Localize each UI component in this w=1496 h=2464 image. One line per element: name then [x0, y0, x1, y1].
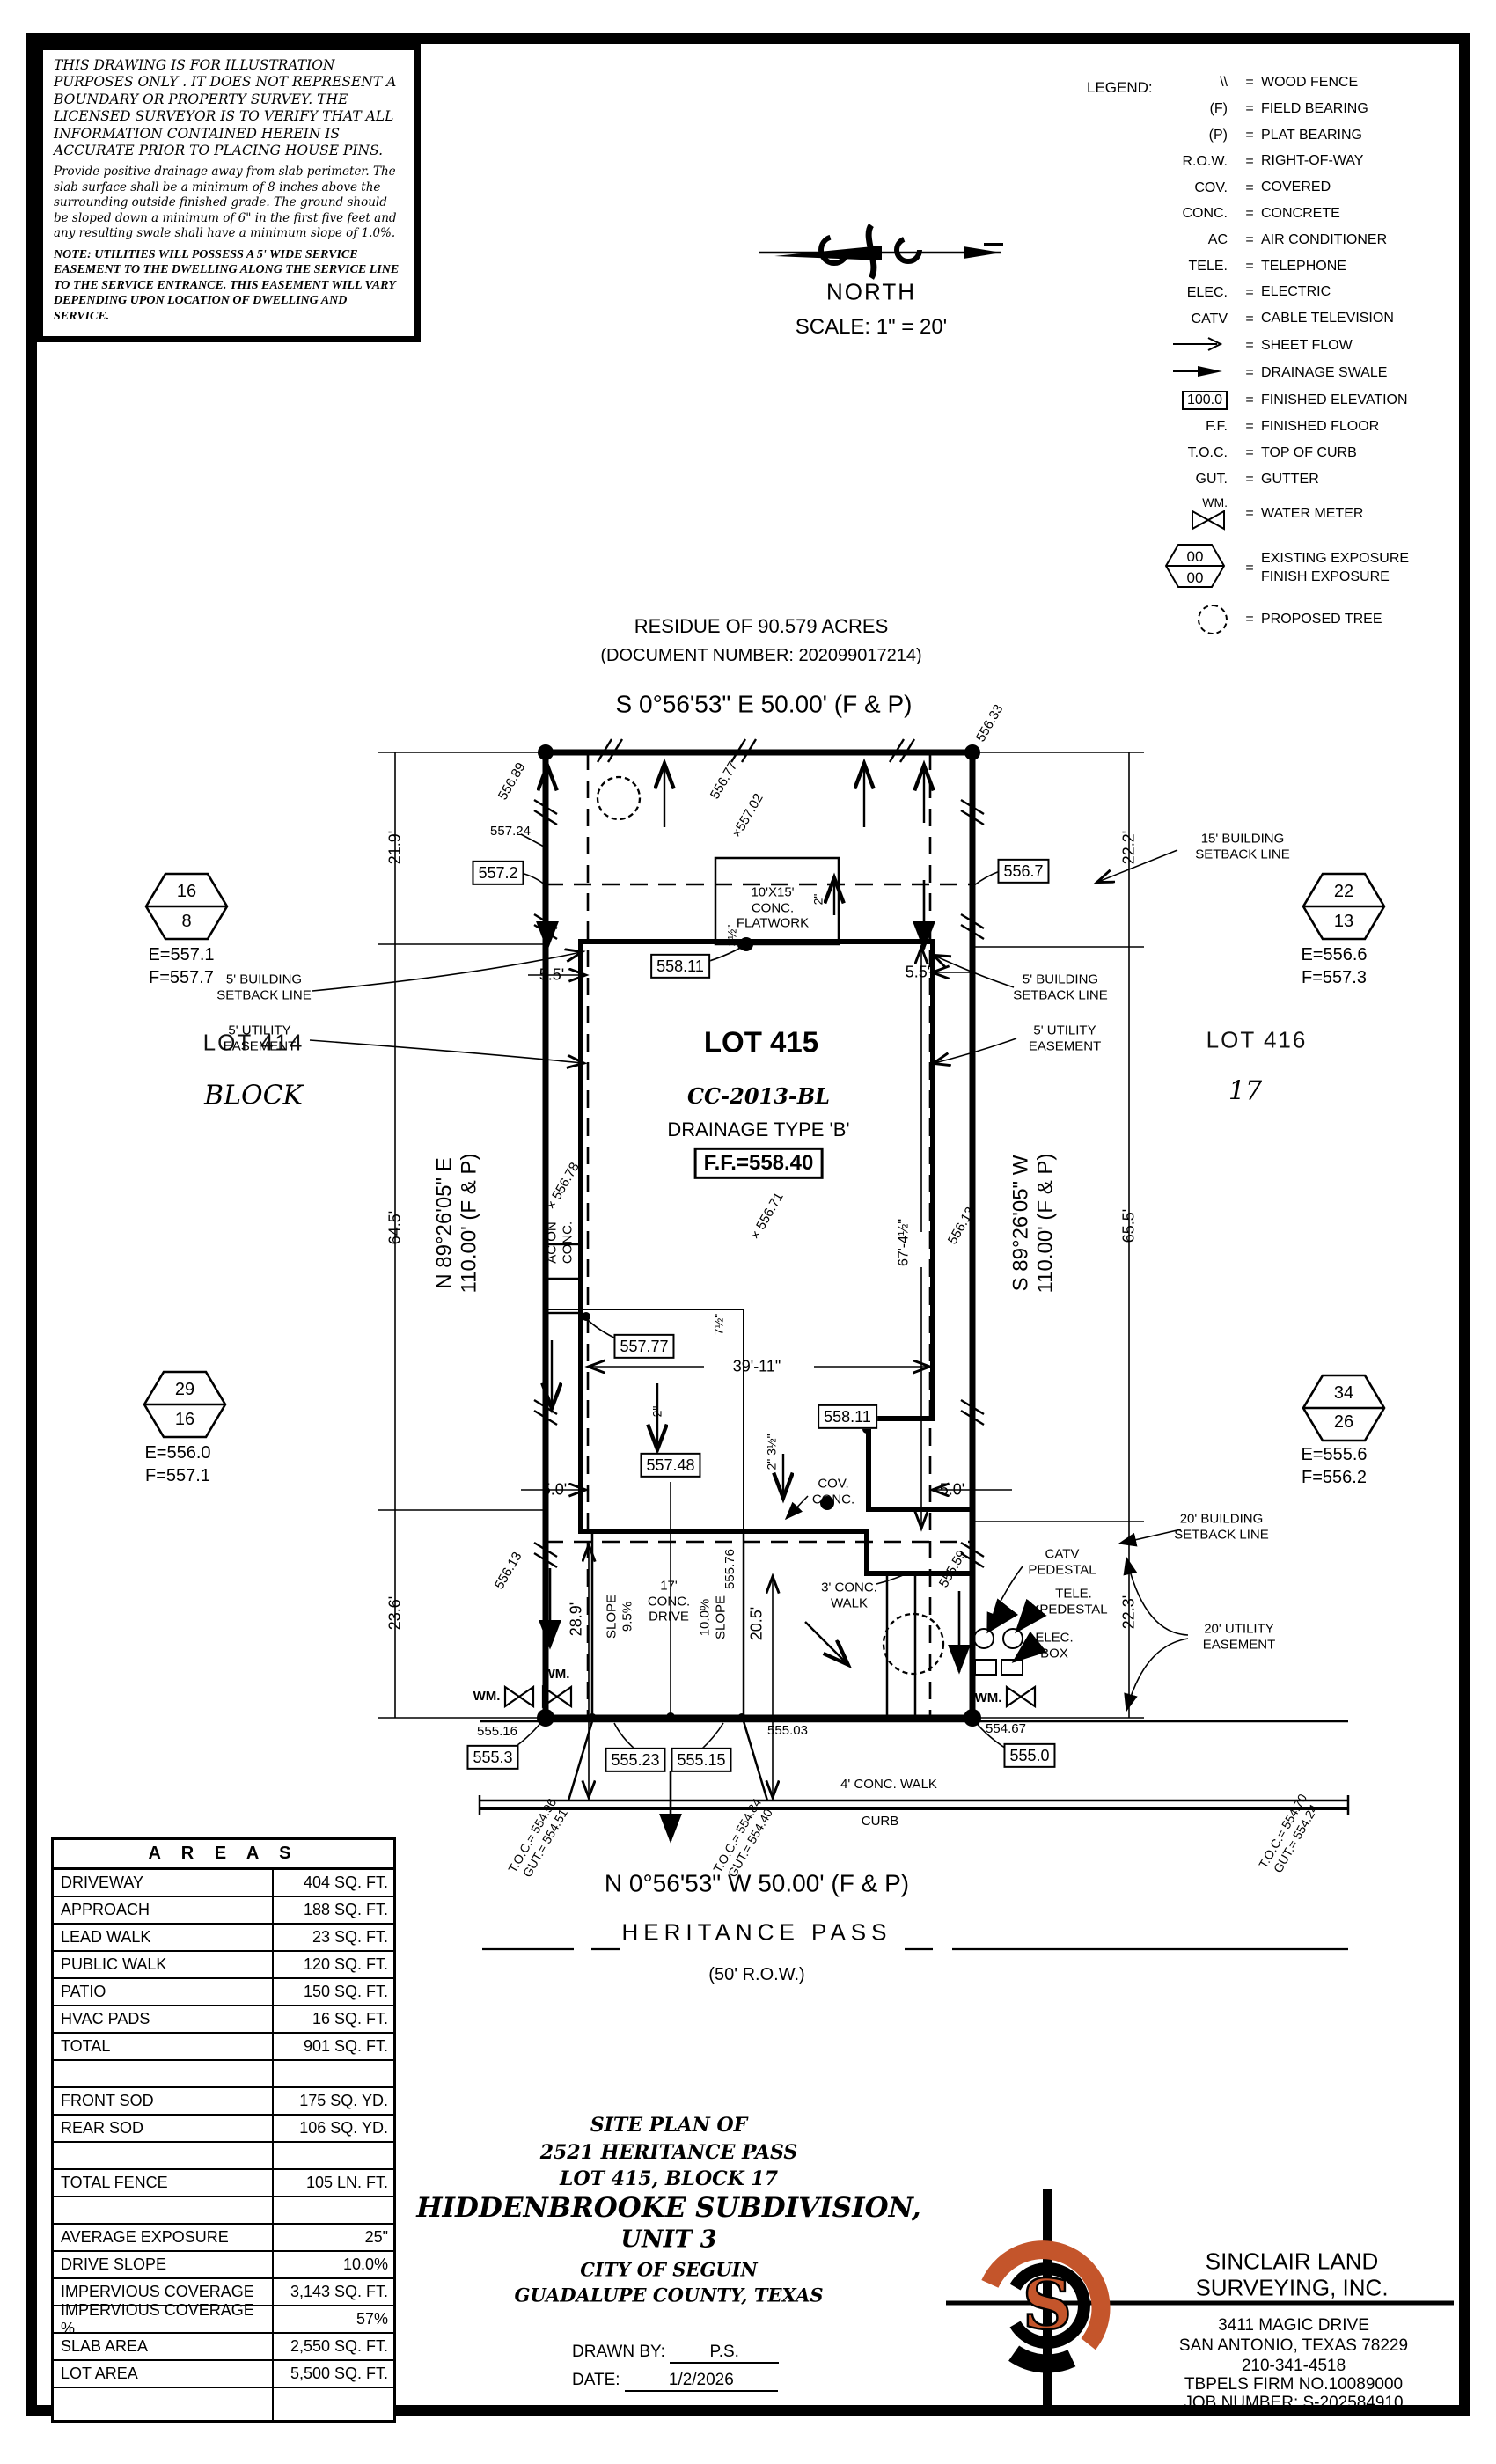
- hex-se-finish: F=556.2: [1302, 1468, 1367, 1489]
- company-firm-number: TBPELS FIRM NO.10089000: [1184, 2375, 1403, 2394]
- conc-key: CONC.: [1087, 206, 1238, 222]
- hex-nw-finish: F=557.7: [149, 968, 214, 989]
- title-city: CITY OF SEGUIN: [580, 2259, 757, 2281]
- hex-sw-existing: E=556.0: [144, 1443, 210, 1464]
- finished-elevation-557-77: 557.77: [613, 1334, 674, 1359]
- plan-code: CC-2013-BL: [687, 1084, 830, 1109]
- finished-elevation-558-11-porch: 558.11: [818, 1404, 877, 1429]
- drive-17-callout: 17' CONC. DRIVE: [648, 1578, 690, 1624]
- hex-se-bottom: 26: [1334, 1412, 1353, 1434]
- hex-ne-bottom: 13: [1334, 912, 1353, 933]
- table-row: TOTAL901 SQ. FT.: [54, 2034, 393, 2061]
- finished-elevation-558-11-rear: 558.11: [650, 954, 710, 979]
- hex-ne-existing: E=556.6: [1301, 945, 1367, 966]
- covered-concrete-callout: COV. CONC.: [812, 1476, 854, 1507]
- dim-64-5: 64.5': [385, 1211, 404, 1244]
- dim-2-inch-top: 2": [811, 894, 826, 906]
- legend-title: LEGEND:: [1087, 79, 1153, 97]
- bearing-east-line: S 89°26'05" W 110.00' (F & P): [1009, 1154, 1060, 1294]
- cov-key: COV.: [1087, 180, 1238, 196]
- block-word: BLOCK: [204, 1080, 303, 1111]
- dim-22-3: 22.3': [1119, 1595, 1138, 1629]
- spot-elevation-555-16: 555.16: [477, 1724, 517, 1740]
- spot-elevation-557-24: 557.24: [490, 824, 531, 840]
- hex-sw-bottom: 16: [175, 1410, 194, 1431]
- spot-elevation-555-03: 555.03: [767, 1723, 808, 1739]
- hex-ne-finish: F=557.3: [1302, 968, 1367, 989]
- block-number: 17: [1228, 1075, 1262, 1106]
- dim-21-9: 21.9': [385, 831, 404, 864]
- residue-document-number: (DOCUMENT NUMBER: 202099017214): [600, 646, 921, 667]
- table-row: IMPERVIOUS COVERAGE %57%: [54, 2306, 393, 2334]
- title-subdivision: HIDDENBROOKE SUBDIVISION,: [416, 2192, 920, 2224]
- dim-5-5-left: 5.5': [539, 965, 564, 984]
- finished-elevation-key: 100.0: [1087, 391, 1238, 410]
- table-row: [54, 2143, 393, 2170]
- finished-elevation-556-7: 556.7: [997, 859, 1049, 884]
- elec-box-callout: ELEC. BOX: [1035, 1630, 1073, 1661]
- setback-20-callout: 20' BUILDING SETBACK LINE: [1174, 1511, 1269, 1542]
- setback-5-right-callout: 5' BUILDING SETBACK LINE: [1013, 972, 1108, 1002]
- table-row: LEAD WALK23 SQ. FT.: [54, 1925, 393, 1952]
- table-row: LOT AREA5,500 SQ. FT.: [54, 2361, 393, 2388]
- company-address-street: 3411 MAGIC DRIVE: [1218, 2316, 1369, 2336]
- drainage-swale-icon: [1087, 364, 1238, 383]
- finished-elevation-557-2: 557.2: [472, 861, 524, 885]
- dim-22-2: 22.2': [1119, 831, 1138, 864]
- table-row: [54, 2388, 393, 2420]
- company-address-city: SAN ANTONIO, TEXAS 78229: [1179, 2336, 1408, 2356]
- proposed-tree-icon: [1087, 605, 1238, 634]
- north-label: NORTH: [826, 279, 916, 306]
- company-name-line1: SINCLAIR LAND: [1206, 2248, 1379, 2276]
- table-row: TOTAL FENCE105 LN. FT.: [54, 2170, 393, 2197]
- table-row: PATIO150 SQ. FT.: [54, 1979, 393, 2006]
- hex-sw-top: 29: [175, 1380, 194, 1401]
- hex-se-top: 34: [1334, 1383, 1353, 1404]
- title-site-plan-of: SITE PLAN OF: [590, 2114, 748, 2137]
- ac-key: AC: [1087, 232, 1238, 248]
- residue-acreage: RESIDUE OF 90.579 ACRES: [634, 615, 889, 638]
- table-row: APPROACH188 SQ. FT.: [54, 1897, 393, 1925]
- svg-text:00: 00: [1187, 569, 1204, 586]
- finished-elevation-555-23: 555.23: [605, 1748, 665, 1772]
- table-row: [54, 2061, 393, 2088]
- title-county: GUADALUPE COUNTY, TEXAS: [514, 2284, 823, 2306]
- hex-nw-bottom: 8: [181, 912, 191, 933]
- hex-nw-top: 16: [177, 882, 196, 903]
- dim-2-3half-inch: 2" 3½": [765, 1434, 780, 1470]
- table-row: DRIVE SLOPE10.0%: [54, 2252, 393, 2279]
- dim-23-6: 23.6': [385, 1596, 404, 1630]
- hex-ne-top: 22: [1334, 882, 1353, 903]
- sheet-flow-icon: [1087, 336, 1238, 356]
- surveyor-logo-icon: S: [990, 2250, 1101, 2364]
- easement-20-callout: 20' UTILITY EASEMENT: [1203, 1621, 1276, 1652]
- finished-elevation-557-48: 557.48: [640, 1453, 700, 1478]
- areas-table-title: A R E A S: [54, 1840, 393, 1870]
- easement-5-right-callout: 5' UTILITY EASEMENT: [1029, 1023, 1102, 1053]
- ff-key: F.F.: [1087, 419, 1238, 435]
- table-row: PUBLIC WALK120 SQ. FT.: [54, 1952, 393, 1979]
- table-row: DRIVEWAY404 SQ. FT.: [54, 1870, 393, 1897]
- bearing-west-line: N 89°26'05" E 110.00' (F & P): [433, 1154, 483, 1294]
- spot-elevation-554-67: 554.67: [986, 1721, 1026, 1737]
- scale-label: SCALE: 1" = 20': [796, 315, 948, 340]
- table-row: FRONT SOD175 SQ. YD.: [54, 2088, 393, 2116]
- table-row: REAR SOD106 SQ. YD.: [54, 2116, 393, 2143]
- easement-5-left-callout: 5' UTILITY EASEMENT: [224, 1023, 297, 1053]
- slope-10-callout: 10.0% SLOPE: [697, 1595, 728, 1639]
- finished-floor-elevation: F.F.=558.40: [694, 1148, 824, 1179]
- tele-key: TELE.: [1087, 259, 1238, 275]
- title-lot-block: LOT 415, BLOCK 17: [560, 2167, 778, 2190]
- ac-on-conc-callout: AC ON CONC.: [544, 1221, 575, 1264]
- dim-2-inch-mid: 2": [650, 1406, 665, 1418]
- plat-bearing-key: (P): [1087, 128, 1238, 143]
- company-name-line2: SURVEYING, INC.: [1195, 2275, 1388, 2302]
- title-unit: UNIT 3: [620, 2226, 716, 2254]
- drainage-type: DRAINAGE TYPE 'B': [667, 1118, 849, 1141]
- dim-39-11: 39'-11": [733, 1357, 781, 1375]
- row-key: R.O.W.: [1087, 154, 1238, 170]
- svg-text:00: 00: [1187, 548, 1204, 565]
- dim-20-5: 20.5': [747, 1607, 766, 1640]
- curb-label: CURB: [862, 1814, 899, 1830]
- finished-elevation-555-3: 555.3: [466, 1745, 518, 1770]
- bearing-north-line: S 0°56'53" E 50.00' (F & P): [616, 689, 913, 718]
- title-address: 2521 HERITANCE PASS: [540, 2141, 798, 2164]
- table-row: SLAB AREA2,550 SQ. FT.: [54, 2334, 393, 2361]
- adjacent-lot-416: LOT 416: [1206, 1027, 1308, 1054]
- flatwork-callout: 10'X15' CONC. FLATWORK: [737, 884, 809, 931]
- dim-65-5: 65.5': [1119, 1209, 1138, 1243]
- company-job-number: JOB NUMBER: S-202584910: [1184, 2394, 1403, 2413]
- hex-nw-existing: E=557.1: [148, 945, 214, 966]
- dim-67-4: 67'-4½": [897, 1219, 913, 1266]
- dim-7-half-inch: 7½": [712, 1314, 727, 1335]
- dim-28-9: 28.9': [567, 1602, 585, 1636]
- walk-3-callout: 3' CONC. WALK: [821, 1580, 877, 1610]
- water-meter-label-east: WM.: [975, 1690, 1002, 1706]
- exposure-hexagon-icon: 0000: [1087, 539, 1238, 597]
- toc-key: T.O.C.: [1087, 445, 1238, 461]
- drawn-by-label: DRAWN BY:: [572, 2343, 665, 2361]
- dim-3-half-inch: 3½": [725, 925, 740, 946]
- spot-elevation-555-76: 555.76: [722, 1549, 738, 1589]
- svg-text:S: S: [1023, 2265, 1072, 2345]
- street-row-width: (50' R.O.W.): [708, 1965, 804, 1986]
- setback-5-left-callout: 5' BUILDING SETBACK LINE: [216, 972, 312, 1002]
- water-meter-icon: WM.: [1087, 496, 1238, 532]
- dim-5-5-right: 5.5': [906, 963, 930, 981]
- street-name: HERITANCE PASS: [622, 1919, 892, 1947]
- walk-4-callout: 4' CONC. WALK: [840, 1777, 937, 1793]
- hex-sw-finish: F=557.1: [145, 1466, 210, 1487]
- table-row: AVERAGE EXPOSURE25": [54, 2225, 393, 2252]
- finished-elevation-555-15: 555.15: [671, 1748, 731, 1772]
- hex-se-existing: E=555.6: [1301, 1445, 1367, 1466]
- finished-elevation-555-0: 555.0: [1003, 1743, 1055, 1768]
- water-meter-label-outside: WM.: [473, 1689, 501, 1705]
- areas-table: A R E A S DRIVEWAY404 SQ. FT. APPROACH18…: [51, 1837, 396, 2423]
- elec-key: ELEC.: [1087, 285, 1238, 301]
- field-bearing-key: (F): [1087, 101, 1238, 117]
- table-row: HVAC PADS16 SQ. FT.: [54, 2006, 393, 2034]
- drawn-by-value: P.S.: [670, 2343, 779, 2364]
- date-value: 1/2/2026: [625, 2371, 778, 2392]
- catv-key: CATV: [1087, 312, 1238, 327]
- tele-pedestal-callout: TELE. PEDESTAL: [1039, 1586, 1107, 1617]
- date-label: DATE:: [572, 2371, 620, 2389]
- gut-key: GUT.: [1087, 472, 1238, 488]
- site-plan-sheet: THIS DRAWING IS FOR ILLUSTRATION PURPOSE…: [0, 0, 1496, 2464]
- slope-9-5-callout: SLOPE 9.5%: [604, 1595, 634, 1639]
- date-row: DATE: 1/2/2026: [572, 2371, 778, 2392]
- company-phone: 210-341-4518: [1242, 2357, 1346, 2376]
- lot-number: LOT 415: [704, 1026, 818, 1060]
- legend: LEGEND: \\=WOOD FENCE (F)=FIELD BEARING …: [1087, 74, 1467, 642]
- drawn-by-row: DRAWN BY: P.S.: [572, 2343, 779, 2364]
- bearing-south-line: N 0°56'53" W 50.00' (F & P): [605, 1868, 909, 1897]
- table-row: [54, 2197, 393, 2225]
- water-meter-label-inside: WM.: [543, 1667, 570, 1683]
- dim-5-0-left: 5.0': [542, 1480, 567, 1499]
- dim-5-0-right: 5.0': [940, 1480, 964, 1499]
- setback-15-callout: 15' BUILDING SETBACK LINE: [1195, 831, 1290, 862]
- catv-pedestal-callout: CATV PEDESTAL: [1028, 1546, 1096, 1577]
